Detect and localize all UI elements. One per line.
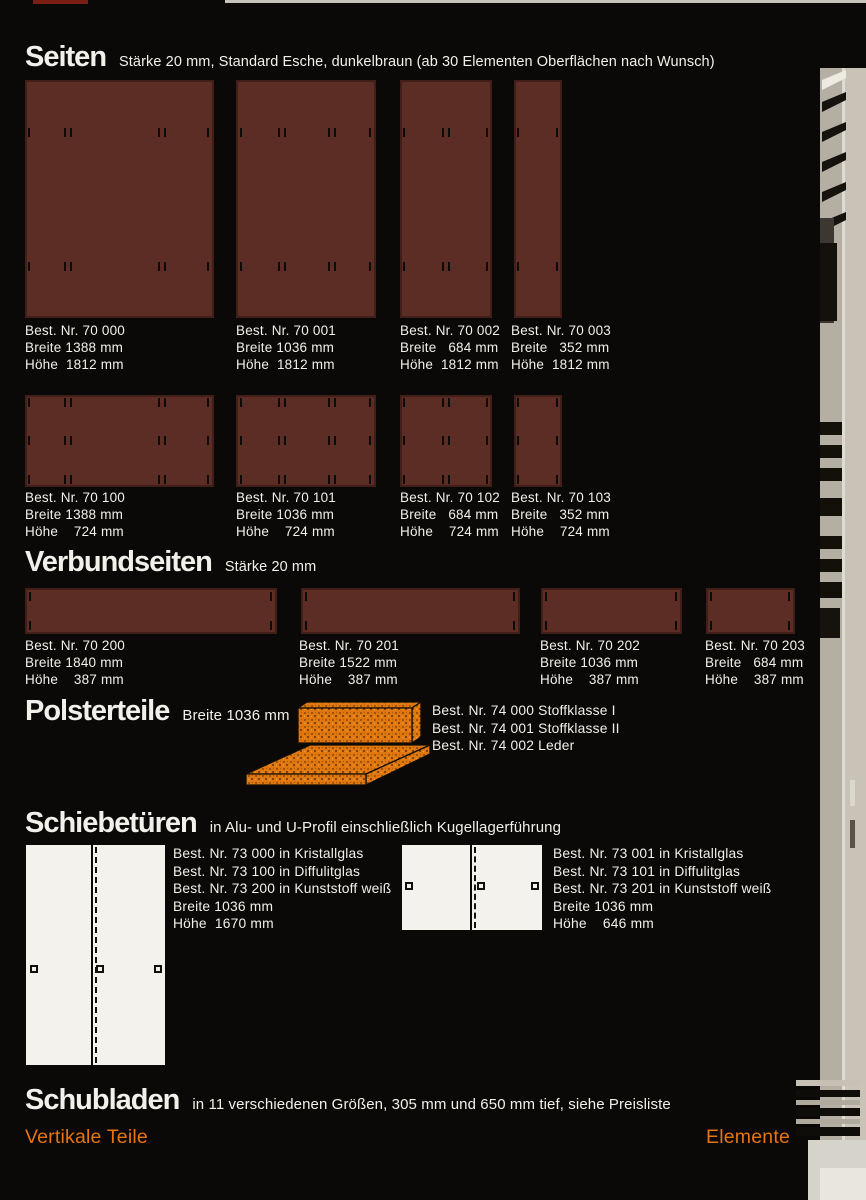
dowel-mark	[278, 436, 280, 445]
door-handle	[531, 882, 539, 890]
seiten-header: Seiten Stärke 20 mm, Standard Esche, dun…	[25, 42, 715, 72]
schiebetueren-header: Schiebetüren in Alu- und U-Profil einsch…	[25, 808, 561, 838]
schubladen-title: Schubladen	[25, 1085, 179, 1115]
dowel-mark	[70, 398, 72, 407]
dowel-mark	[64, 436, 66, 445]
dowel-mark	[486, 128, 488, 137]
verbundseiten-header: Verbundseiten Stärke 20 mm	[25, 547, 316, 577]
dowel-mark	[513, 592, 515, 601]
dowel-mark	[328, 475, 330, 484]
dowel-mark	[207, 436, 209, 445]
dowel-mark	[207, 128, 209, 137]
dowel-mark	[278, 398, 280, 407]
dowel-mark	[284, 398, 286, 407]
spec-label: Best. Nr. 70 201Breite 1522 mmHöhe 387 m…	[299, 637, 399, 688]
panel-70200	[25, 588, 277, 634]
door-leaf	[93, 845, 165, 1065]
door-handle	[154, 965, 162, 973]
spec-label: Best. Nr. 70 101Breite 1036 mmHöhe 724 m…	[236, 489, 336, 540]
dowel-mark	[158, 475, 160, 484]
dowel-mark	[64, 128, 66, 137]
schiebetueren-title: Schiebetüren	[25, 808, 197, 838]
schiebetueren-left-spec: Best. Nr. 73 000 in Kristallglas Best. N…	[173, 845, 391, 933]
schiebetueren-subtitle: in Alu- und U-Profil einschließlich Kuge…	[210, 819, 561, 836]
dowel-mark	[334, 262, 336, 271]
dowel-mark	[28, 475, 30, 484]
dowel-mark	[70, 128, 72, 137]
panel-70202	[541, 588, 682, 634]
spec-label: Best. Nr. 70 002Breite 684 mmHöhe 1812 m…	[400, 322, 500, 373]
dowel-mark	[164, 398, 166, 407]
dowel-mark	[278, 475, 280, 484]
verbundseiten-title: Verbundseiten	[25, 547, 212, 577]
dowel-mark	[442, 436, 444, 445]
dowel-mark	[556, 475, 558, 484]
dowel-mark	[517, 436, 519, 445]
dowel-mark	[545, 621, 547, 630]
dowel-mark	[369, 128, 371, 137]
schiebetueren-right-spec: Best. Nr. 73 001 in Kristallglas Best. N…	[553, 845, 771, 933]
dowel-mark	[305, 621, 307, 630]
panel-70002	[400, 80, 492, 318]
dowel-mark	[403, 262, 405, 271]
dowel-mark	[278, 128, 280, 137]
dowel-mark	[207, 262, 209, 271]
spec-label: Best. Nr. 70 102Breite 684 mmHöhe 724 mm	[400, 489, 500, 540]
seiten-subtitle: Stärke 20 mm, Standard Esche, dunkelbrau…	[119, 54, 715, 70]
dowel-mark	[334, 128, 336, 137]
dowel-mark	[513, 621, 515, 630]
dowel-mark	[284, 262, 286, 271]
dowel-mark	[334, 398, 336, 407]
panel-70000	[25, 80, 214, 318]
schubladen-subtitle: in 11 verschiedenen Größen, 305 mm und 6…	[192, 1096, 670, 1113]
dowel-mark	[28, 128, 30, 137]
dowel-mark	[369, 398, 371, 407]
dowel-mark	[334, 436, 336, 445]
dowel-mark	[70, 475, 72, 484]
door-track-dashed-line	[474, 847, 476, 928]
dowel-mark	[556, 262, 558, 271]
door-handle	[30, 965, 38, 973]
dowel-mark	[240, 128, 242, 137]
dowel-mark	[305, 592, 307, 601]
dowel-mark	[240, 262, 242, 271]
dowel-mark	[28, 436, 30, 445]
dowel-mark	[486, 436, 488, 445]
panel-70003	[514, 80, 562, 318]
dowel-mark	[328, 128, 330, 137]
dowel-mark	[403, 128, 405, 137]
door-handle	[477, 882, 485, 890]
dowel-mark	[164, 128, 166, 137]
dowel-mark	[328, 262, 330, 271]
dowel-mark	[369, 475, 371, 484]
spec-label: Best. Nr. 70 000Breite 1388 mmHöhe 1812 …	[25, 322, 125, 373]
panel-70203	[706, 588, 795, 634]
dowel-mark	[486, 262, 488, 271]
door-track-dashed-line	[95, 847, 97, 1063]
dowel-mark	[517, 475, 519, 484]
dowel-mark	[158, 262, 160, 271]
dowel-mark	[29, 621, 31, 630]
dowel-mark	[403, 475, 405, 484]
dowel-mark	[28, 398, 30, 407]
dowel-mark	[164, 475, 166, 484]
dowel-mark	[164, 262, 166, 271]
dowel-mark	[334, 475, 336, 484]
dowel-mark	[403, 398, 405, 407]
dowel-mark	[64, 475, 66, 484]
dowel-mark	[240, 398, 242, 407]
panel-70001	[236, 80, 376, 318]
dowel-mark	[158, 398, 160, 407]
polsterteile-title: Polsterteile	[25, 696, 169, 726]
dowel-mark	[545, 592, 547, 601]
dowel-mark	[207, 475, 209, 484]
door-handle	[405, 882, 413, 890]
dowel-mark	[207, 398, 209, 407]
adjacent-page-photo-strip	[788, 68, 866, 1200]
dowel-mark	[284, 128, 286, 137]
dowel-mark	[369, 436, 371, 445]
dowel-mark	[517, 128, 519, 137]
dowel-mark	[240, 436, 242, 445]
dowel-mark	[158, 128, 160, 137]
dowel-mark	[556, 398, 558, 407]
cushion-illustration	[240, 697, 436, 793]
dowel-mark	[70, 262, 72, 271]
spec-label: Best. Nr. 70 003Breite 352 mmHöhe 1812 m…	[511, 322, 611, 373]
seiten-title: Seiten	[25, 42, 106, 72]
dowel-mark	[710, 621, 712, 630]
dowel-mark	[328, 398, 330, 407]
dowel-mark	[369, 262, 371, 271]
polster-spec-label: Best. Nr. 74 000 Stoffklasse I Best. Nr.…	[432, 702, 620, 755]
dowel-mark	[270, 621, 272, 630]
spec-label: Best. Nr. 70 001Breite 1036 mmHöhe 1812 …	[236, 322, 336, 373]
dowel-mark	[448, 398, 450, 407]
dowel-mark	[448, 128, 450, 137]
dowel-mark	[442, 128, 444, 137]
dowel-mark	[442, 475, 444, 484]
dowel-mark	[448, 475, 450, 484]
dowel-mark	[556, 436, 558, 445]
spec-label: Best. Nr. 70 100Breite 1388 mmHöhe 724 m…	[25, 489, 125, 540]
panel-70102	[400, 395, 492, 487]
dowel-mark	[517, 398, 519, 407]
door-leaf	[26, 845, 91, 1065]
dowel-mark	[675, 592, 677, 601]
sliding-door-short-illustration	[402, 845, 542, 930]
dowel-mark	[270, 592, 272, 601]
dowel-mark	[29, 592, 31, 601]
panel-70201	[301, 588, 520, 634]
footer-section-label: Vertikale Teile	[25, 1126, 148, 1149]
dowel-mark	[164, 436, 166, 445]
catalog-page: Seiten Stärke 20 mm, Standard Esche, dun…	[0, 0, 866, 1200]
dowel-mark	[70, 436, 72, 445]
dowel-mark	[517, 262, 519, 271]
dowel-mark	[158, 436, 160, 445]
dowel-mark	[284, 436, 286, 445]
dowel-mark	[442, 398, 444, 407]
dowel-mark	[64, 262, 66, 271]
dowel-mark	[710, 592, 712, 601]
panel-70100	[25, 395, 214, 487]
scan-edge-line	[225, 0, 866, 3]
dowel-mark	[28, 262, 30, 271]
dowel-mark	[64, 398, 66, 407]
panel-70103	[514, 395, 562, 487]
dowel-mark	[278, 262, 280, 271]
dowel-mark	[442, 262, 444, 271]
dowel-mark	[448, 262, 450, 271]
dowel-mark	[448, 436, 450, 445]
dowel-mark	[486, 475, 488, 484]
spec-label: Best. Nr. 70 103Breite 352 mmHöhe 724 mm	[511, 489, 611, 540]
dowel-mark	[486, 398, 488, 407]
dowel-mark	[556, 128, 558, 137]
dowel-mark	[403, 436, 405, 445]
panel-70101	[236, 395, 376, 487]
dowel-mark	[284, 475, 286, 484]
verbundseiten-subtitle: Stärke 20 mm	[225, 559, 316, 575]
scan-red-mark	[33, 0, 88, 4]
spec-label: Best. Nr. 70 200Breite 1840 mmHöhe 387 m…	[25, 637, 125, 688]
dowel-mark	[328, 436, 330, 445]
sliding-door-tall-illustration	[26, 845, 165, 1065]
spec-label: Best. Nr. 70 202Breite 1036 mmHöhe 387 m…	[540, 637, 640, 688]
dowel-mark	[675, 621, 677, 630]
footer-page-label: Elemente	[706, 1126, 790, 1149]
dowel-mark	[240, 475, 242, 484]
schubladen-header: Schubladen in 11 verschiedenen Größen, 3…	[25, 1085, 671, 1115]
door-handle	[96, 965, 104, 973]
